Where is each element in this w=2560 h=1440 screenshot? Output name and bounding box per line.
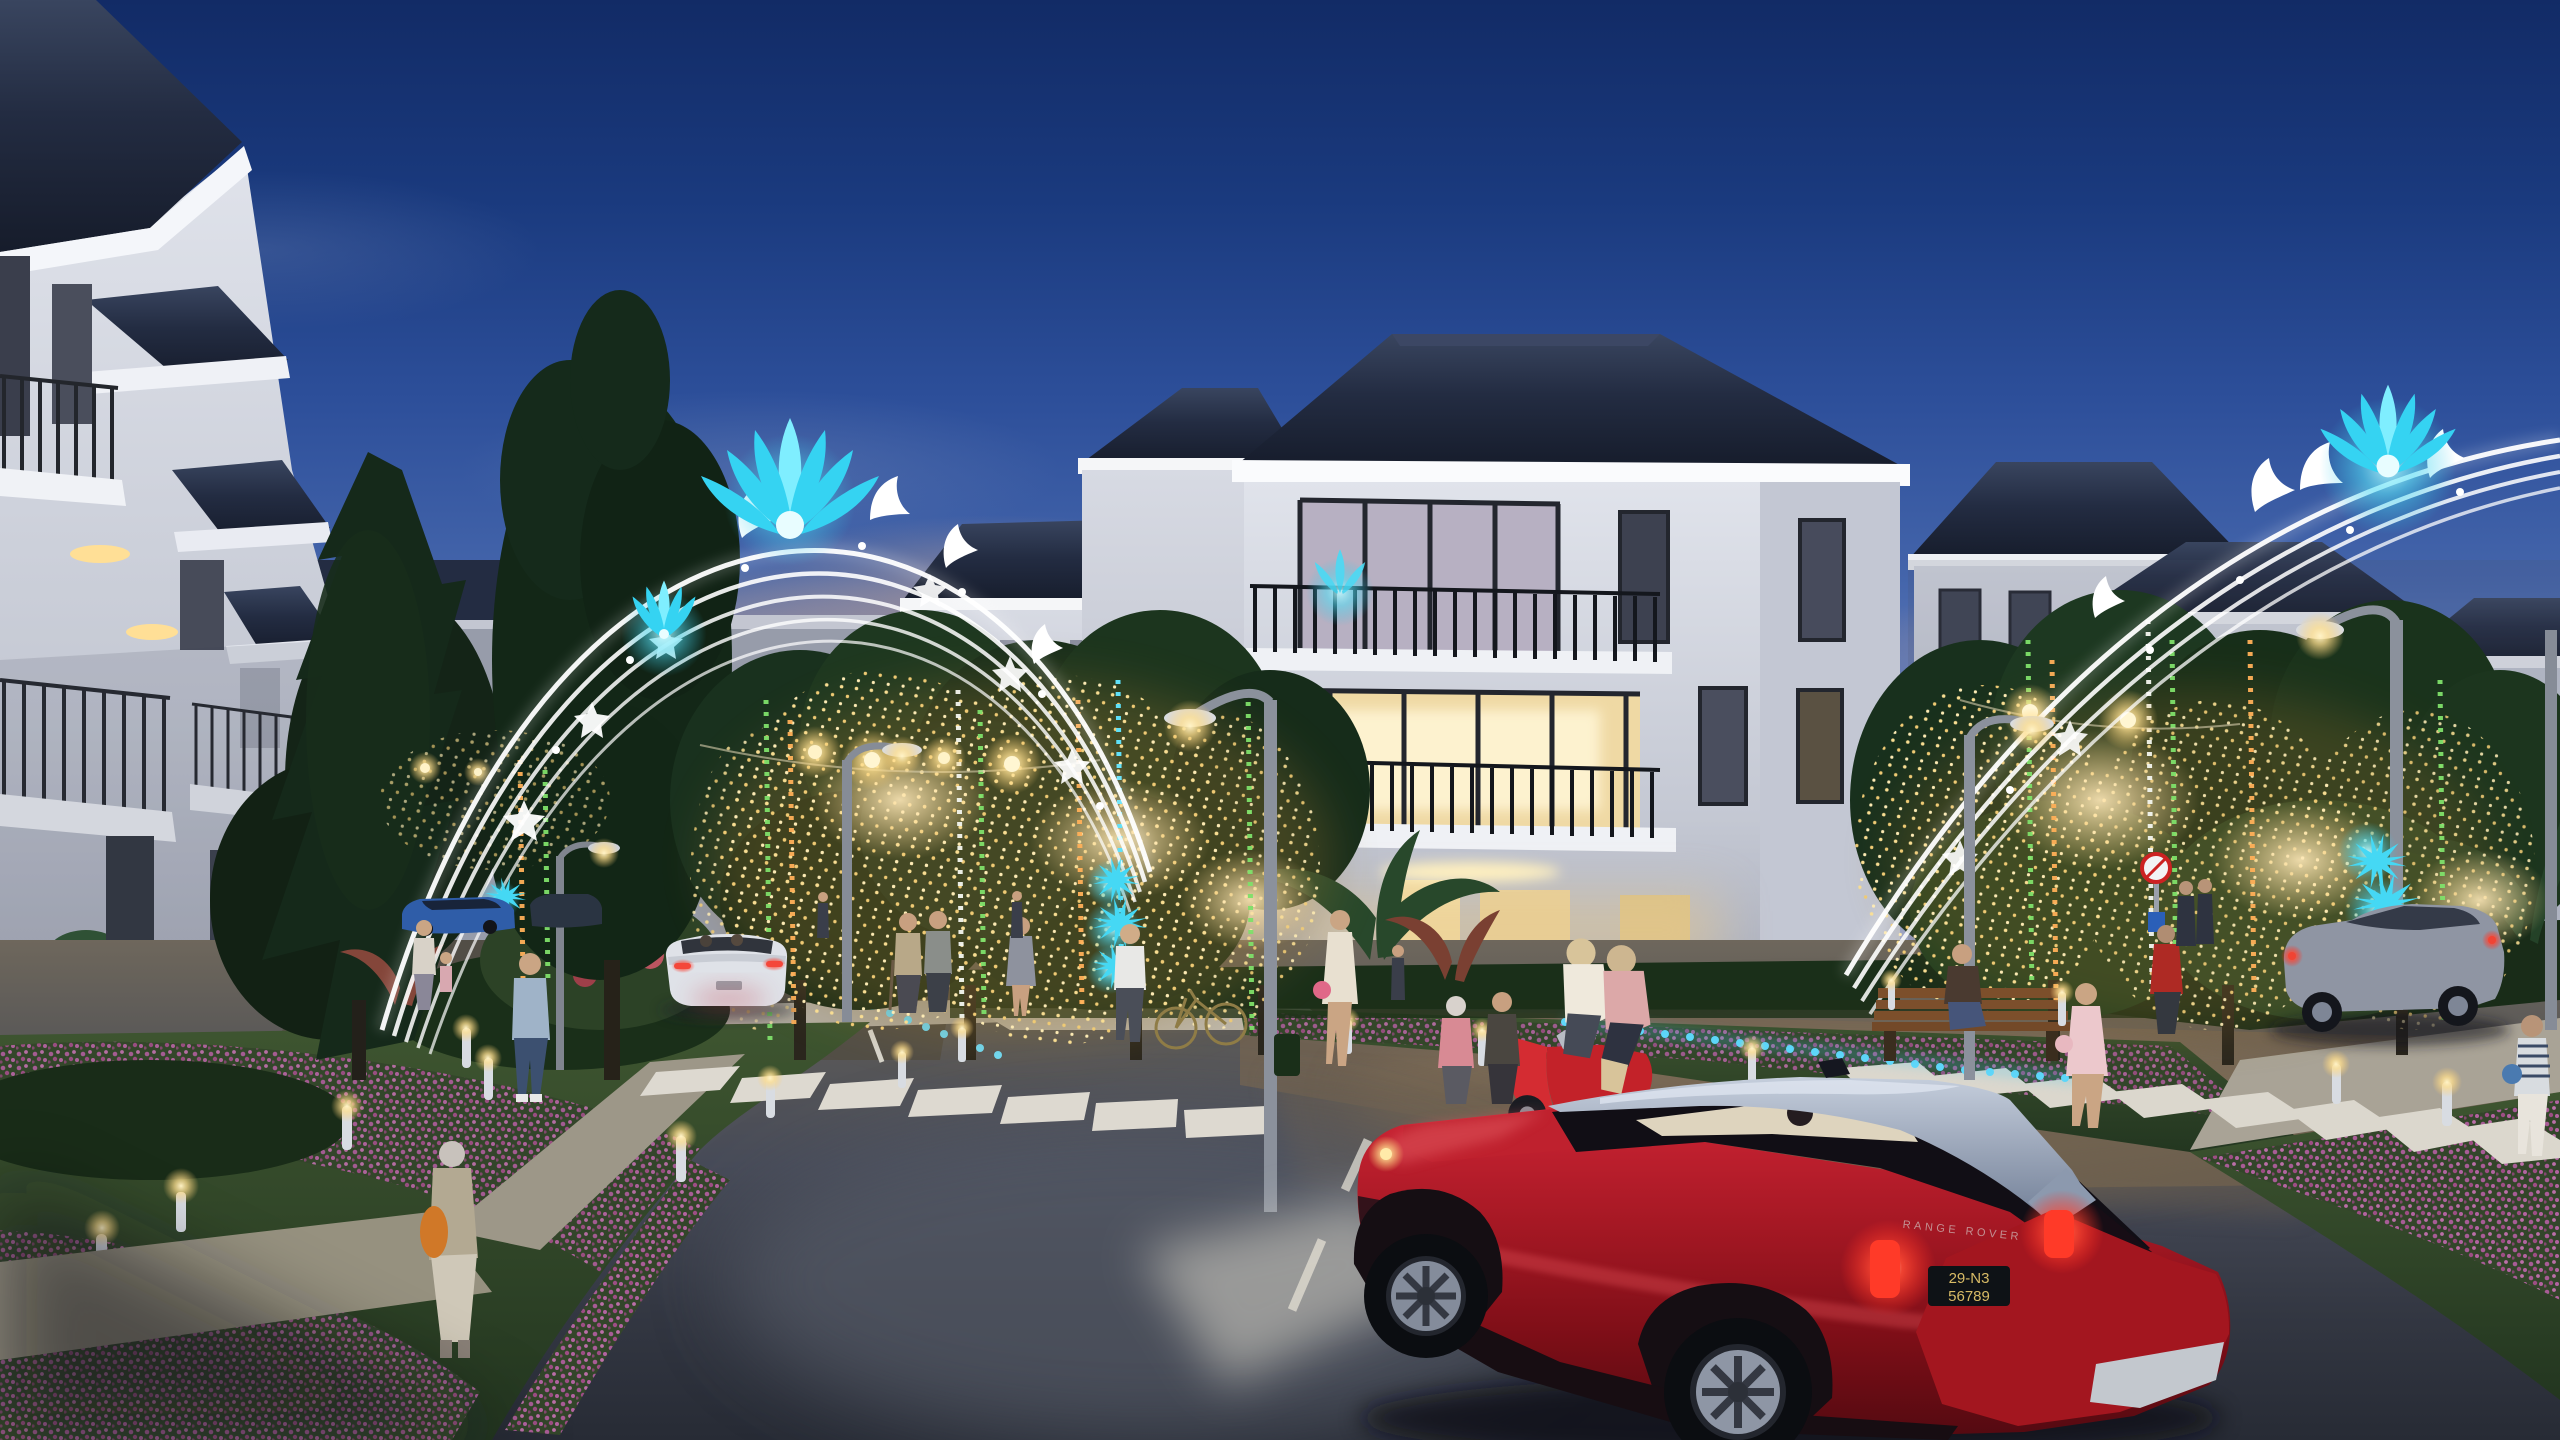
svg-text:29-N3: 29-N3: [1949, 1270, 1990, 1287]
svg-text:56789: 56789: [1948, 1288, 1990, 1305]
